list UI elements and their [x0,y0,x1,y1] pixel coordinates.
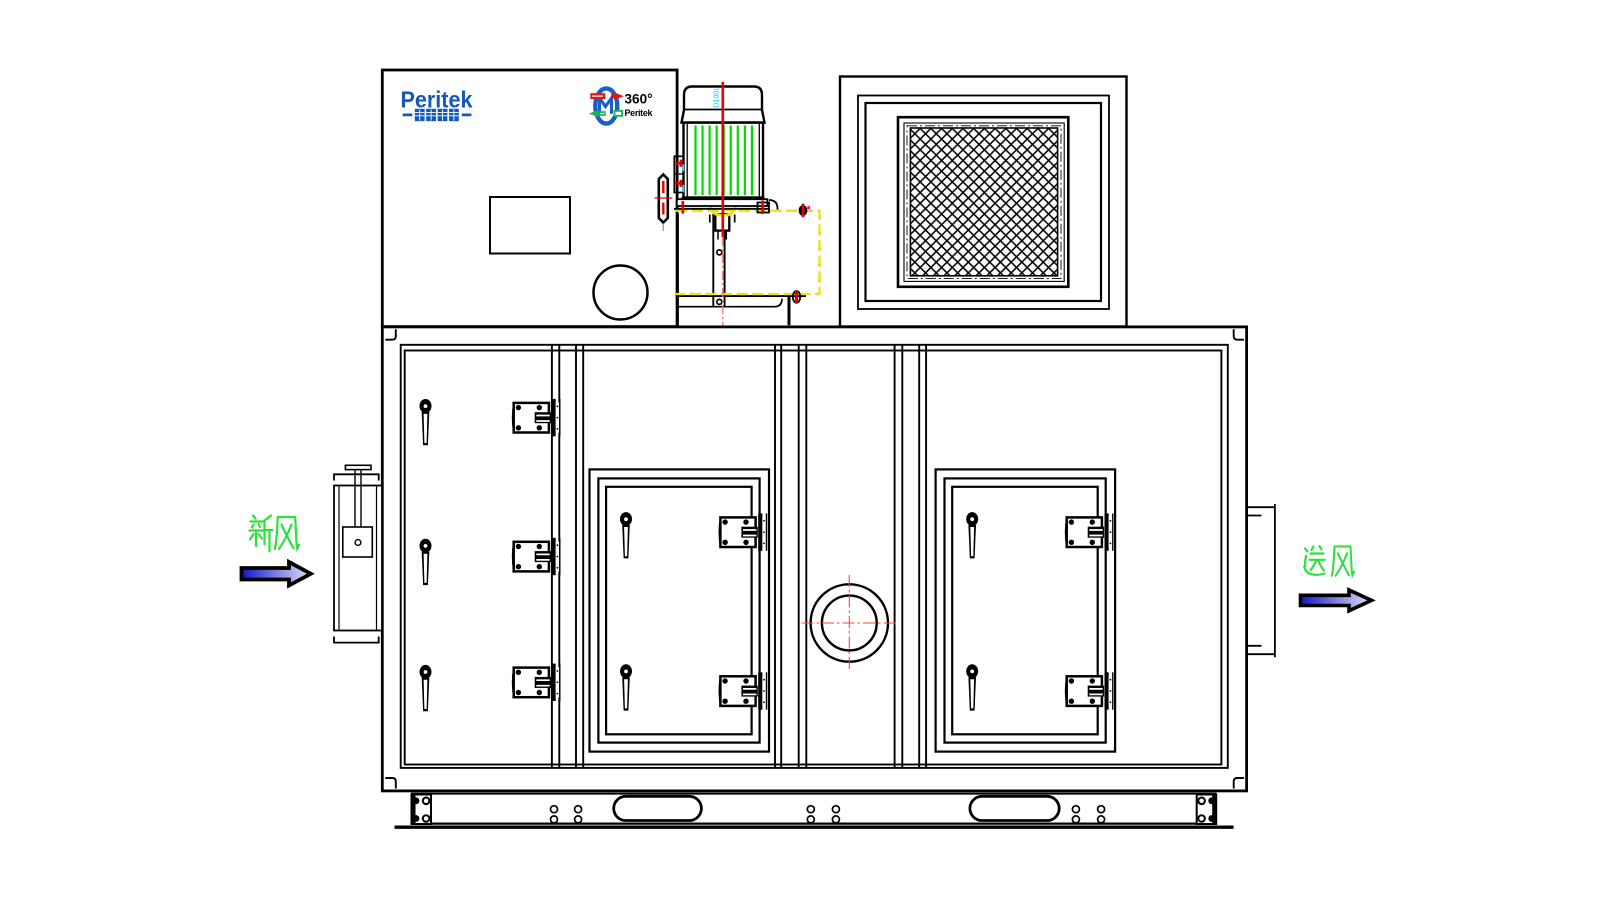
svg-text:Peritek: Peritek [625,108,654,118]
svg-text:D100L: D100L [714,87,721,108]
svg-text:Peritek: Peritek [401,87,474,113]
svg-text:360°: 360° [625,92,653,107]
